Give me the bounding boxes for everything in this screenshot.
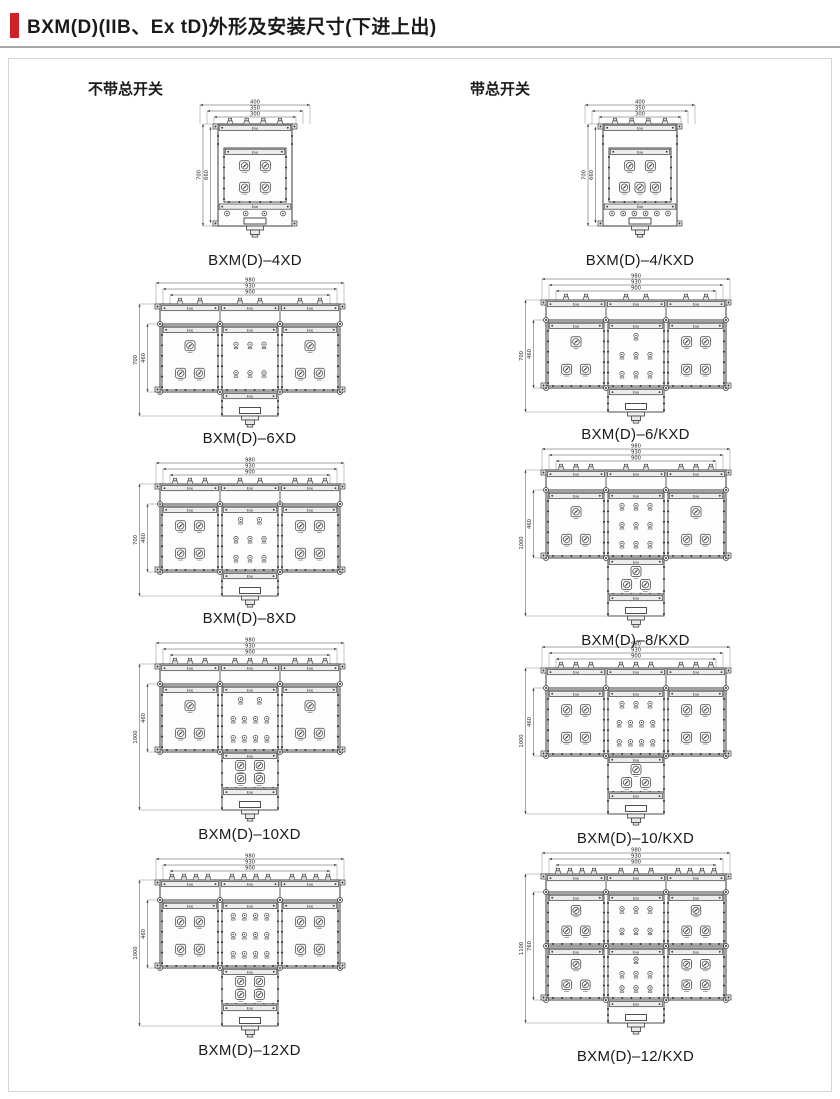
svg-text:Exe: Exe bbox=[307, 883, 314, 887]
svg-text:900: 900 bbox=[631, 456, 641, 462]
svg-text:Exe: Exe bbox=[633, 303, 640, 307]
svg-text:Exe: Exe bbox=[247, 667, 254, 671]
svg-text:Exe: Exe bbox=[247, 754, 254, 758]
svg-text:Exe: Exe bbox=[187, 883, 194, 887]
figure-caption: BXM(D)–6/KXD bbox=[523, 426, 748, 443]
svg-text:Exe: Exe bbox=[633, 473, 640, 477]
svg-text:Exe: Exe bbox=[573, 473, 580, 477]
svg-text:Exe: Exe bbox=[633, 597, 640, 601]
page-title: BXM(D)(IIB、Ex tD)外形及安装尺寸(下进上出) bbox=[27, 12, 437, 39]
svg-text:Exe: Exe bbox=[307, 688, 314, 692]
svg-text:Exe: Exe bbox=[247, 1007, 254, 1011]
svg-text:Exe: Exe bbox=[693, 692, 700, 696]
svg-text:460: 460 bbox=[141, 353, 147, 363]
svg-text:Exe: Exe bbox=[573, 671, 580, 675]
svg-text:460: 460 bbox=[141, 713, 147, 723]
svg-text:1000: 1000 bbox=[133, 730, 139, 743]
svg-text:Exe: Exe bbox=[187, 328, 194, 332]
page-header: BXM(D)(IIB、Ex tD)外形及安装尺寸(下进上出) bbox=[0, 0, 840, 48]
svg-text:900: 900 bbox=[245, 866, 255, 872]
svg-text:Exe: Exe bbox=[187, 508, 194, 512]
figure-bxmd-6kxd: 980930900700460ExeExeExeExeExeExeExe BXM… bbox=[510, 272, 735, 443]
svg-text:900: 900 bbox=[245, 290, 255, 296]
svg-text:900: 900 bbox=[631, 286, 641, 292]
svg-text:Exe: Exe bbox=[307, 667, 314, 671]
technical-drawing-bxmd-8kxd: 9809309001000460ExeExeExeExeExeExeExeExe bbox=[510, 442, 735, 630]
svg-text:460: 460 bbox=[141, 533, 147, 543]
technical-drawing-bxmd-8xd: 980930900700460ExeExeExeExeExeExeExe bbox=[124, 456, 349, 608]
svg-text:Exe: Exe bbox=[247, 487, 254, 491]
svg-text:Exe: Exe bbox=[633, 671, 640, 675]
svg-text:300: 300 bbox=[250, 112, 260, 118]
svg-text:Exe: Exe bbox=[187, 688, 194, 692]
svg-text:Exe: Exe bbox=[633, 560, 640, 564]
figure-caption: BXM(D)–10/KXD bbox=[523, 830, 748, 847]
svg-text:Exe: Exe bbox=[573, 896, 580, 900]
svg-text:900: 900 bbox=[631, 654, 641, 660]
figure-bxmd-6xd: 980930900700460ExeExeExeExeExeExeExe BXM… bbox=[124, 276, 349, 447]
svg-text:Exe: Exe bbox=[633, 758, 640, 762]
svg-text:Exe: Exe bbox=[307, 328, 314, 332]
technical-drawing-bxmd-6kxd: 980930900700460ExeExeExeExeExeExeExe bbox=[510, 272, 735, 424]
svg-text:Exe: Exe bbox=[693, 494, 700, 498]
svg-text:Exe: Exe bbox=[247, 307, 254, 311]
svg-text:Exe: Exe bbox=[633, 391, 640, 395]
svg-text:Exe: Exe bbox=[637, 126, 644, 130]
svg-text:Exe: Exe bbox=[307, 487, 314, 491]
technical-drawing-bxmd-12xd: 9809309001000460ExeExeExeExeExeExeExeExe bbox=[124, 852, 349, 1040]
svg-text:Exe: Exe bbox=[633, 324, 640, 328]
figure-caption: BXM(D)–8XD bbox=[137, 610, 362, 627]
svg-text:Exe: Exe bbox=[633, 896, 640, 900]
figure-caption: BXM(D)–4XD bbox=[160, 252, 350, 269]
svg-text:Exe: Exe bbox=[252, 150, 259, 154]
svg-text:Exe: Exe bbox=[573, 877, 580, 881]
svg-text:Exe: Exe bbox=[633, 692, 640, 696]
svg-text:900: 900 bbox=[245, 470, 255, 476]
svg-text:Exe: Exe bbox=[247, 508, 254, 512]
svg-text:Exe: Exe bbox=[247, 395, 254, 399]
svg-text:1000: 1000 bbox=[133, 946, 139, 959]
svg-text:Exe: Exe bbox=[693, 877, 700, 881]
svg-text:Exe: Exe bbox=[633, 1003, 640, 1007]
svg-text:700: 700 bbox=[519, 351, 525, 361]
svg-text:460: 460 bbox=[527, 349, 533, 359]
technical-drawing-bxmd-10xd: 9809309001000460ExeExeExeExeExeExeExeExe bbox=[124, 636, 349, 824]
svg-text:Exe: Exe bbox=[573, 692, 580, 696]
svg-text:Exe: Exe bbox=[187, 904, 194, 908]
figure-bxmd-10xd: 9809309001000460ExeExeExeExeExeExeExeExe… bbox=[124, 636, 349, 843]
svg-text:Exe: Exe bbox=[693, 473, 700, 477]
svg-text:Exe: Exe bbox=[693, 671, 700, 675]
svg-text:Exe: Exe bbox=[693, 950, 700, 954]
svg-text:Exe: Exe bbox=[247, 575, 254, 579]
svg-text:Exe: Exe bbox=[633, 877, 640, 881]
figure-caption: BXM(D)–6XD bbox=[137, 430, 362, 447]
column-header-with-main-switch: 带总开关 bbox=[470, 78, 530, 99]
svg-text:Exe: Exe bbox=[247, 791, 254, 795]
svg-text:Exe: Exe bbox=[247, 904, 254, 908]
svg-text:Exe: Exe bbox=[247, 883, 254, 887]
svg-text:1000: 1000 bbox=[519, 734, 525, 747]
svg-text:660: 660 bbox=[204, 170, 210, 180]
svg-text:Exe: Exe bbox=[187, 487, 194, 491]
svg-text:Exe: Exe bbox=[693, 896, 700, 900]
svg-text:Exe: Exe bbox=[187, 667, 194, 671]
figure-bxmd-12xd: 9809309001000460ExeExeExeExeExeExeExeExe… bbox=[124, 852, 349, 1059]
svg-text:Exe: Exe bbox=[307, 508, 314, 512]
figure-bxmd-8kxd: 9809309001000460ExeExeExeExeExeExeExeExe… bbox=[510, 442, 735, 649]
svg-text:Exe: Exe bbox=[247, 688, 254, 692]
column-header-without-main-switch: 不带总开关 bbox=[88, 78, 163, 99]
svg-text:1100: 1100 bbox=[519, 942, 525, 955]
svg-text:Exe: Exe bbox=[637, 150, 644, 154]
svg-text:Exe: Exe bbox=[187, 307, 194, 311]
svg-text:Exe: Exe bbox=[573, 303, 580, 307]
svg-text:460: 460 bbox=[141, 929, 147, 939]
svg-text:760: 760 bbox=[527, 941, 533, 951]
figure-caption: BXM(D)–12XD bbox=[137, 1042, 362, 1059]
figure-caption: BXM(D)–12/KXD bbox=[523, 1048, 748, 1065]
svg-text:700: 700 bbox=[133, 535, 139, 545]
figure-caption: BXM(D)–10XD bbox=[137, 826, 362, 843]
svg-text:Exe: Exe bbox=[633, 494, 640, 498]
svg-text:Exe: Exe bbox=[307, 307, 314, 311]
svg-text:Exe: Exe bbox=[573, 950, 580, 954]
figure-bxmd-4kxd: 400350300700660ExeExeExe BXM(D)–4/KXD bbox=[545, 98, 735, 269]
svg-text:Exe: Exe bbox=[252, 126, 259, 130]
svg-text:Exe: Exe bbox=[573, 494, 580, 498]
svg-text:700: 700 bbox=[582, 170, 588, 180]
technical-drawing-bxmd-12kxd: 9809309001100760ExeExeExeExeExeExeExeExe… bbox=[510, 846, 735, 1046]
svg-text:1000: 1000 bbox=[519, 536, 525, 549]
figure-bxmd-10kxd: 9809309001000460ExeExeExeExeExeExeExeExe… bbox=[510, 640, 735, 847]
svg-text:660: 660 bbox=[589, 170, 595, 180]
svg-text:Exe: Exe bbox=[307, 904, 314, 908]
svg-text:900: 900 bbox=[631, 860, 641, 866]
figure-bxmd-4xd: 400350300700660ExeExeExe BXM(D)–4XD bbox=[160, 98, 350, 269]
svg-text:Exe: Exe bbox=[573, 324, 580, 328]
technical-drawing-bxmd-4xd: 400350300700660ExeExeExe bbox=[160, 98, 350, 250]
technical-drawing-bxmd-10kxd: 9809309001000460ExeExeExeExeExeExeExeExe bbox=[510, 640, 735, 828]
svg-text:Exe: Exe bbox=[633, 795, 640, 799]
svg-text:Exe: Exe bbox=[252, 205, 259, 209]
svg-text:Exe: Exe bbox=[693, 324, 700, 328]
technical-drawing-bxmd-4kxd: 400350300700660ExeExeExe bbox=[545, 98, 735, 250]
svg-text:Exe: Exe bbox=[247, 328, 254, 332]
svg-text:Exe: Exe bbox=[633, 950, 640, 954]
svg-text:300: 300 bbox=[635, 112, 645, 118]
technical-drawing-bxmd-6xd: 980930900700460ExeExeExeExeExeExeExe bbox=[124, 276, 349, 428]
svg-text:Exe: Exe bbox=[637, 205, 644, 209]
svg-text:Exe: Exe bbox=[693, 303, 700, 307]
figure-bxmd-12kxd: 9809309001100760ExeExeExeExeExeExeExeExe… bbox=[510, 846, 735, 1065]
svg-text:700: 700 bbox=[197, 170, 203, 180]
title-accent-bar bbox=[10, 13, 19, 38]
svg-text:700: 700 bbox=[133, 355, 139, 365]
svg-text:460: 460 bbox=[527, 717, 533, 727]
svg-text:Exe: Exe bbox=[247, 970, 254, 974]
figure-caption: BXM(D)–4/KXD bbox=[545, 252, 735, 269]
svg-text:460: 460 bbox=[527, 519, 533, 529]
figure-bxmd-8xd: 980930900700460ExeExeExeExeExeExeExe BXM… bbox=[124, 456, 349, 627]
svg-text:900: 900 bbox=[245, 650, 255, 656]
